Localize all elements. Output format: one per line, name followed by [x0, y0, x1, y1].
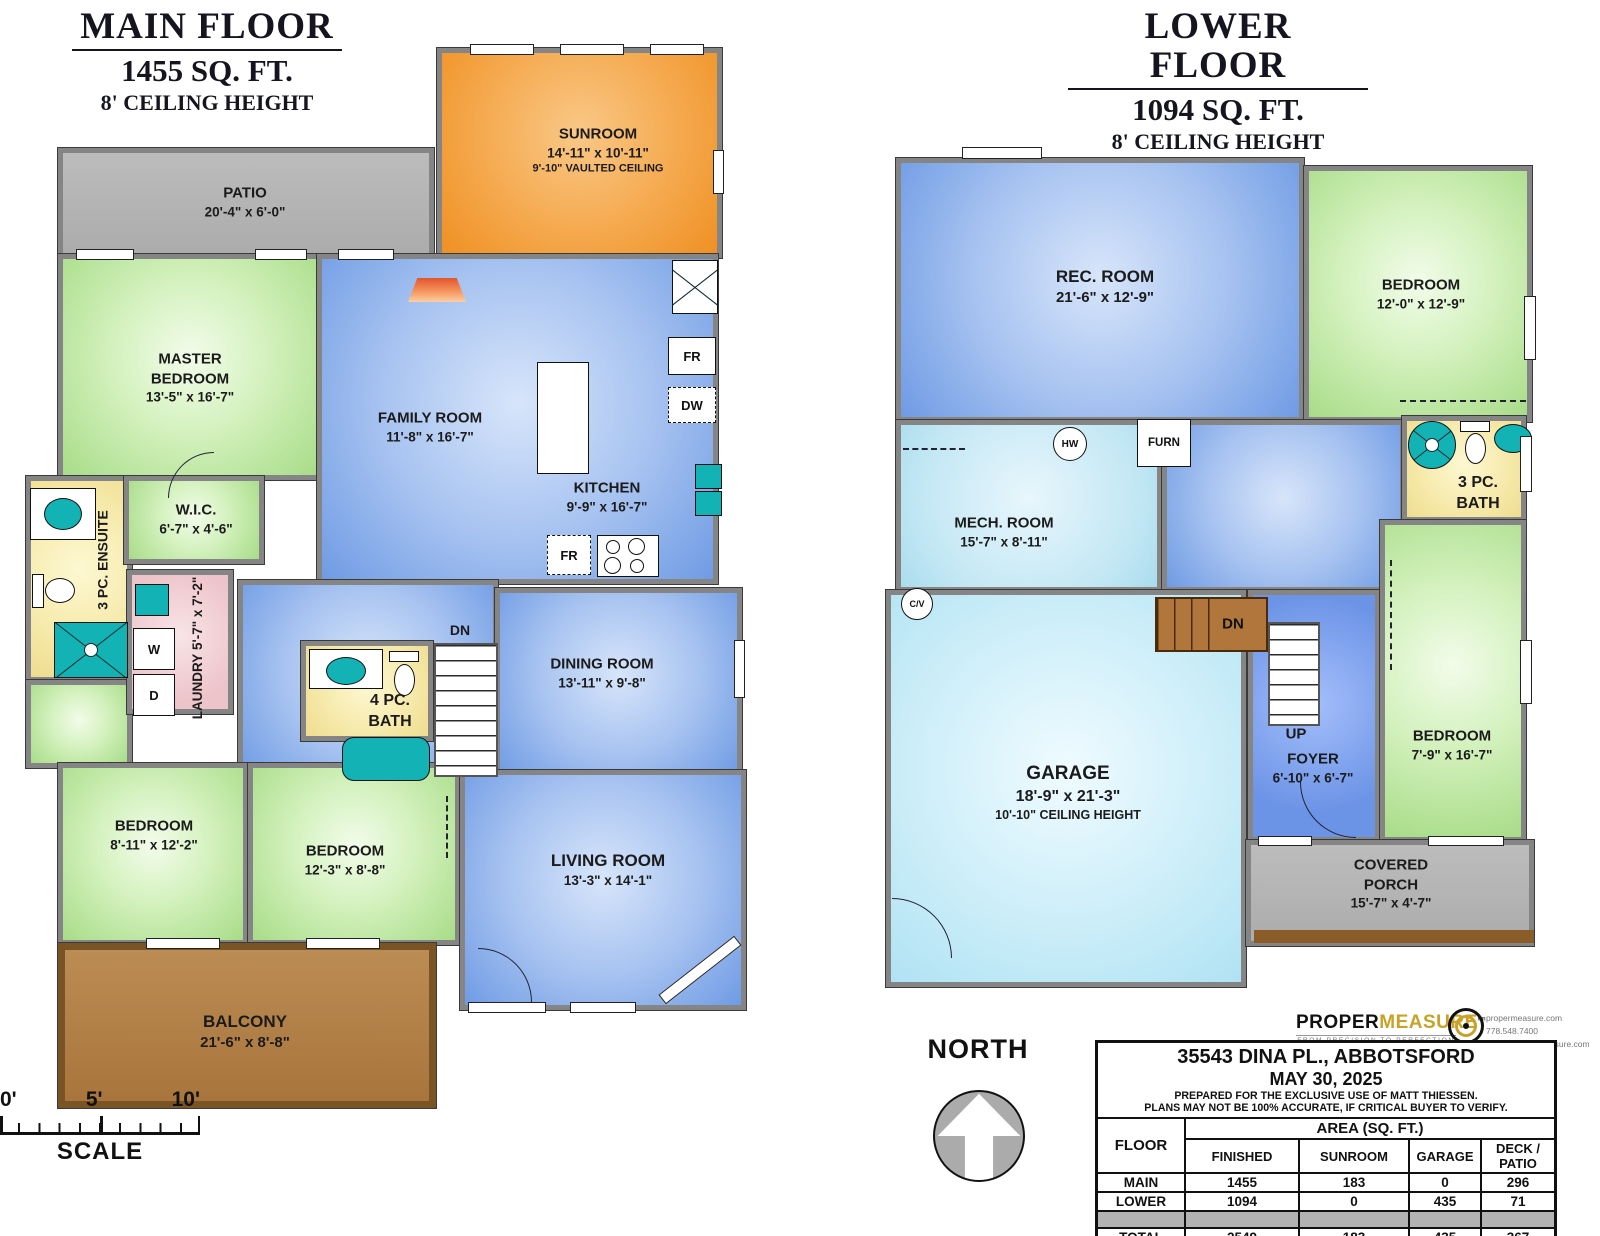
- info-note-2: PLANS MAY NOT BE 100% ACCURATE, IF CRITI…: [1100, 1102, 1552, 1114]
- stove-burner: [630, 559, 644, 573]
- label-covered-porch: COVERED PORCH 15'-7" x 4'-7": [1336, 856, 1446, 913]
- washer-box: W: [133, 628, 175, 670]
- table-row-lower: LOWER 1094 0 435 71: [1097, 1192, 1556, 1211]
- closet-dash: [446, 796, 448, 858]
- hot-water-tank: HW: [1053, 427, 1087, 461]
- floor-plan-canvas: MAIN FLOOR 1455 SQ. FT. 8' CEILING HEIGH…: [0, 0, 1600, 1236]
- scale-tick: [0, 1116, 3, 1132]
- north-label: NORTH: [908, 1034, 1048, 1065]
- label-kitchen: KITCHEN 9'-9" x 16'-7": [567, 478, 648, 515]
- stove-burner: [628, 538, 645, 555]
- window: [338, 249, 394, 260]
- total-finished: 2549: [1185, 1228, 1299, 1236]
- label-bedroom-3: BEDROOM 12'-3" x 8'-8": [305, 841, 386, 878]
- col-floor-header: FLOOR: [1097, 1118, 1186, 1173]
- freezer-box: FR: [547, 535, 591, 575]
- scale-10: 10': [172, 1088, 200, 1112]
- ensuite-sink: [44, 498, 82, 530]
- area-header: AREA (SQ. FT.): [1185, 1118, 1556, 1139]
- furnace-box: FURN: [1137, 419, 1191, 467]
- logo-target-dot: [1463, 1023, 1469, 1029]
- label-mech-room: MECH. ROOM 15'-7" x 8'-11": [954, 513, 1053, 550]
- window: [1428, 836, 1504, 846]
- stairs-lower-down: [1155, 597, 1268, 652]
- table-row-spacer: [1097, 1211, 1556, 1228]
- window: [468, 1002, 546, 1013]
- label-patio: PATIO 20'-4" x 6'-0": [205, 183, 286, 220]
- bath4-sink: [326, 657, 366, 685]
- window: [76, 249, 134, 260]
- window: [470, 44, 534, 55]
- main-floor-sqft: 1455 SQ. FT.: [52, 53, 362, 89]
- label-bath-3pc: 3 PC. BATH: [1446, 473, 1510, 515]
- bath3-toilet-bowl: [1465, 433, 1486, 464]
- lower-sunroom: 0: [1299, 1192, 1409, 1211]
- kitchen-sink-2: [695, 491, 722, 516]
- fireplace: [408, 278, 466, 302]
- shower-drain: [84, 643, 98, 657]
- furnace-label: FURN: [1148, 437, 1180, 449]
- laundry-sink: [135, 584, 169, 616]
- scale-5: 5': [86, 1088, 103, 1112]
- window: [713, 150, 724, 194]
- lower-deck-patio: 71: [1481, 1192, 1556, 1211]
- info-header-cell: 35543 DINA PL., ABBOTSFORD MAY 30, 2025 …: [1097, 1042, 1556, 1119]
- bath3-shower: [1408, 421, 1456, 469]
- logo-target-ring: [1455, 1015, 1477, 1037]
- hw-label: HW: [1062, 439, 1079, 450]
- info-date: MAY 30, 2025: [1100, 1069, 1552, 1090]
- lower-floor-title: LOWER FLOOR: [1068, 8, 1368, 90]
- attic-hatch: [672, 260, 718, 314]
- stairs-main-down: [434, 643, 498, 777]
- central-vac: C/V: [901, 588, 933, 620]
- logo-phone: 778.548.7400: [1486, 1025, 1600, 1038]
- bath4-tub: [342, 737, 430, 781]
- col-deck-patio-header: DECK / PATIO: [1481, 1139, 1556, 1173]
- dryer-box: D: [133, 674, 175, 716]
- label-bedroom-lower-2: BEDROOM 7'-9" x 16'-7": [1412, 726, 1493, 763]
- info-note-1: PREPARED FOR THE EXCLUSIVE USE OF MATT T…: [1100, 1090, 1552, 1102]
- kitchen-island: [537, 362, 589, 474]
- stove-burner: [604, 557, 621, 574]
- dishwasher-box: DW: [668, 387, 716, 423]
- label-rec-room: REC. ROOM 21'-6" x 12'-9": [1056, 266, 1154, 308]
- label-dn-main: DN: [450, 621, 470, 639]
- north-arrow-icon: [935, 1092, 1023, 1180]
- room-closet: [26, 680, 132, 768]
- window: [962, 147, 1042, 159]
- table-row-total: TOTAL 2549 183 435 367: [1097, 1228, 1556, 1236]
- main-garage: 0: [1409, 1173, 1481, 1192]
- scale-labels: 0' 5' 10': [0, 1088, 200, 1112]
- label-bedroom-2: BEDROOM 8'-11" x 12'-2": [110, 816, 198, 853]
- stove-burner: [606, 540, 620, 554]
- closet-dash: [1390, 560, 1392, 670]
- window: [255, 249, 307, 260]
- total-sunroom: 183: [1299, 1228, 1409, 1236]
- label-bath-4pc: 4 PC. BATH: [355, 691, 425, 733]
- label-sunroom: SUNROOM 14'-11" x 10'-11" 9'-10" VAULTED…: [533, 124, 664, 175]
- total-garage: 435: [1409, 1228, 1481, 1236]
- info-address: 35543 DINA PL., ABBOTSFORD: [1100, 1046, 1552, 1069]
- window: [1258, 836, 1312, 846]
- fridge-box: FR: [668, 337, 716, 375]
- label-bedroom-lower-1: BEDROOM 12'-0" x 12'-9": [1377, 275, 1465, 312]
- logo-part1: PROPER: [1296, 1012, 1379, 1033]
- col-garage-header: GARAGE: [1409, 1139, 1481, 1173]
- kitchen-sink-1: [695, 464, 722, 489]
- window: [734, 640, 745, 698]
- room-bedroom-2: [58, 763, 248, 945]
- north-compass-icon: [933, 1090, 1025, 1182]
- window: [570, 1002, 636, 1013]
- main-finished: 1455: [1185, 1173, 1299, 1192]
- lower-finished: 1094: [1185, 1192, 1299, 1211]
- main-floor-ceiling: 8' CEILING HEIGHT: [52, 90, 362, 116]
- col-finished-header: FINISHED: [1185, 1139, 1299, 1173]
- table-row-main: MAIN 1455 183 0 296: [1097, 1173, 1556, 1192]
- porch-step: [1254, 930, 1534, 943]
- label-wic: W.I.C. 6'-7" x 4'-6": [159, 500, 232, 537]
- main-floor-cell: MAIN: [1097, 1173, 1186, 1192]
- bath4-toilet-tank: [389, 651, 419, 662]
- shower-drain: [1425, 438, 1439, 452]
- info-table: 35543 DINA PL., ABBOTSFORD MAY 30, 2025 …: [1095, 1040, 1557, 1236]
- label-living: LIVING ROOM 13'-3" x 14'-1": [551, 850, 665, 890]
- scale-bar: 0' 5' 10' SCALE: [0, 1088, 200, 1166]
- scale-0: 0': [0, 1088, 17, 1112]
- scale-caption: SCALE: [0, 1138, 200, 1166]
- room-hall-lower: [1162, 420, 1405, 592]
- main-sunroom: 183: [1299, 1173, 1409, 1192]
- dryer-label: D: [149, 688, 158, 703]
- stairs-lower-up: [1268, 622, 1320, 726]
- label-foyer: FOYER 6'-10" x 6'-7": [1273, 749, 1354, 786]
- label-ensuite: 3 PC. ENSUITE: [95, 510, 112, 610]
- main-floor-title: MAIN FLOOR: [72, 8, 342, 51]
- window: [306, 938, 380, 949]
- total-deck-patio: 367: [1481, 1228, 1556, 1236]
- logo-wordmark: PROPERMEASUREtm: [1296, 1012, 1456, 1034]
- label-master-bedroom: MASTER BEDROOM 13'-5" x 16'-7": [130, 350, 250, 407]
- window: [1520, 640, 1532, 704]
- label-laundry: LAUNDRY 5'-7" x 7'-2": [190, 577, 206, 720]
- dishwasher-label: DW: [681, 398, 703, 413]
- total-cell: TOTAL: [1097, 1228, 1186, 1236]
- lower-floor-cell: LOWER: [1097, 1192, 1186, 1211]
- label-family-room: FAMILY ROOM 11'-8" x 16'-7": [378, 408, 482, 445]
- col-sunroom-header: SUNROOM: [1299, 1139, 1409, 1173]
- room-bedroom-lower-2: [1380, 520, 1526, 842]
- lower-garage: 435: [1409, 1192, 1481, 1211]
- scale-tick: [198, 1116, 201, 1132]
- window: [560, 44, 624, 55]
- ensuite-shower: [54, 622, 128, 678]
- label-garage: GARAGE 18'-9" x 21'-3" 10'-10" CEILING H…: [995, 762, 1141, 824]
- window: [146, 938, 220, 949]
- ensuite-toilet-bowl: [45, 578, 75, 603]
- label-up: UP: [1286, 724, 1307, 744]
- scale-tick: [100, 1116, 103, 1132]
- scale-ruler: [0, 1114, 200, 1135]
- room-mech: [896, 420, 1162, 592]
- washer-label: W: [148, 642, 160, 657]
- label-dn-lower: DN: [1222, 614, 1244, 634]
- bath3-toilet-tank: [1460, 421, 1490, 432]
- logo-target-icon: [1448, 1008, 1484, 1044]
- fridge-label: FR: [683, 349, 700, 364]
- lower-floor-title-block: LOWER FLOOR 1094 SQ. FT. 8' CEILING HEIG…: [1068, 8, 1368, 155]
- freezer-label: FR: [560, 548, 577, 563]
- window: [1524, 296, 1536, 360]
- main-floor-title-block: MAIN FLOOR 1455 SQ. FT. 8' CEILING HEIGH…: [52, 8, 362, 116]
- window: [650, 44, 704, 55]
- ensuite-toilet-tank: [32, 574, 44, 608]
- label-balcony: BALCONY 21'-6" x 8'-8": [200, 1011, 290, 1053]
- lower-floor-sqft: 1094 SQ. FT.: [1068, 92, 1368, 128]
- lower-floor-ceiling: 8' CEILING HEIGHT: [1068, 129, 1368, 155]
- window: [1520, 436, 1532, 492]
- logo-website: propermeasure.com: [1486, 1012, 1600, 1025]
- closet-dash: [903, 448, 965, 450]
- main-deck-patio: 296: [1481, 1173, 1556, 1192]
- closet-dash: [1400, 400, 1526, 402]
- label-dining: DINING ROOM 13'-11" x 9'-8": [550, 654, 653, 691]
- cv-label: C/V: [909, 599, 924, 609]
